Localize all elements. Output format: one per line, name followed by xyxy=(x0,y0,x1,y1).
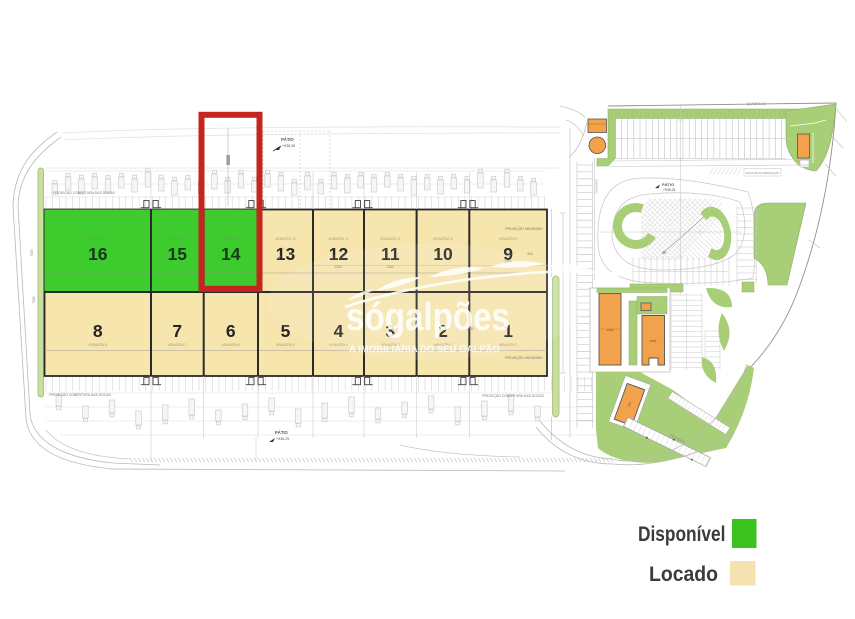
svg-text:PROJEÇÃO COBERTURA DAS DOCAS: PROJEÇÃO COBERTURA DAS DOCAS xyxy=(49,392,111,397)
svg-text:15: 15 xyxy=(168,244,188,264)
svg-text:PÁTIO: PÁTIO xyxy=(281,137,295,142)
svg-text:ARMAZÉM 5: ARMAZÉM 5 xyxy=(276,342,295,347)
svg-text:PROJEÇÃO MEZANINO: PROJEÇÃO MEZANINO xyxy=(505,226,543,231)
svg-text:ARMAZÉM 16: ARMAZÉM 16 xyxy=(88,236,109,241)
svg-text:ARMAZÉM 8: ARMAZÉM 8 xyxy=(88,342,107,347)
svg-text:6: 6 xyxy=(226,321,236,341)
svg-text:ARMAZÉM 6: ARMAZÉM 6 xyxy=(221,342,240,347)
svg-text:ARMAZÉM 14: ARMAZÉM 14 xyxy=(221,236,242,241)
svg-text:PÁTIO: PÁTIO xyxy=(662,182,674,187)
svg-text:+938,35: +938,35 xyxy=(282,144,295,148)
svg-text:sógalpões: sógalpões xyxy=(346,296,510,339)
svg-text:7000: 7000 xyxy=(32,296,36,303)
svg-text:Disponível: Disponível xyxy=(638,523,726,546)
svg-text:1500: 1500 xyxy=(650,339,657,343)
svg-text:1500: 1500 xyxy=(607,328,614,332)
svg-text:ARMAZÉM 12: ARMAZÉM 12 xyxy=(328,236,349,241)
svg-text:FAIXA DE ACOMODAÇÃO: FAIXA DE ACOMODAÇÃO xyxy=(746,170,780,175)
svg-text:ARMAZÉM 13: ARMAZÉM 13 xyxy=(275,236,296,241)
svg-text:ARMAZÉM 11: ARMAZÉM 11 xyxy=(380,236,400,241)
svg-text:8: 8 xyxy=(93,321,103,341)
svg-text:ARMAZÉM 7: ARMAZÉM 7 xyxy=(168,342,187,347)
svg-text:7: 7 xyxy=(172,321,182,341)
svg-text:PROJEÇÃO COBERTURA DAS DOCAS: PROJEÇÃO COBERTURA DAS DOCAS xyxy=(53,190,115,195)
svg-text:PÁTIO: PÁTIO xyxy=(275,430,289,435)
svg-text:940: 940 xyxy=(527,252,533,256)
svg-text:14: 14 xyxy=(221,244,241,264)
svg-text:ARMAZÉM 15: ARMAZÉM 15 xyxy=(167,236,188,241)
svg-text:16: 16 xyxy=(88,244,108,264)
svg-text:QUADRA A2: QUADRA A2 xyxy=(746,102,765,106)
svg-text:A IMOBILIÁRIA DO SEU GALPÃO: A IMOBILIÁRIA DO SEU GALPÃO xyxy=(349,344,500,354)
svg-text:7000: 7000 xyxy=(30,249,34,256)
svg-text:ARMAZÉM 10: ARMAZÉM 10 xyxy=(433,236,454,241)
svg-text:GUARDRAIL: GUARDRAIL xyxy=(595,178,599,194)
svg-text:+938,25: +938,25 xyxy=(276,437,289,441)
svg-text:PROJEÇÃO COBERTURA DAS DOCAS: PROJEÇÃO COBERTURA DAS DOCAS xyxy=(482,393,544,398)
svg-text:13: 13 xyxy=(276,244,296,264)
svg-text:PROJEÇÃO MEZANINO: PROJEÇÃO MEZANINO xyxy=(505,355,543,360)
svg-text:+938,25: +938,25 xyxy=(663,188,675,192)
svg-text:Locado: Locado xyxy=(649,563,718,586)
svg-text:ARMAZÉM 9: ARMAZÉM 9 xyxy=(499,236,518,241)
